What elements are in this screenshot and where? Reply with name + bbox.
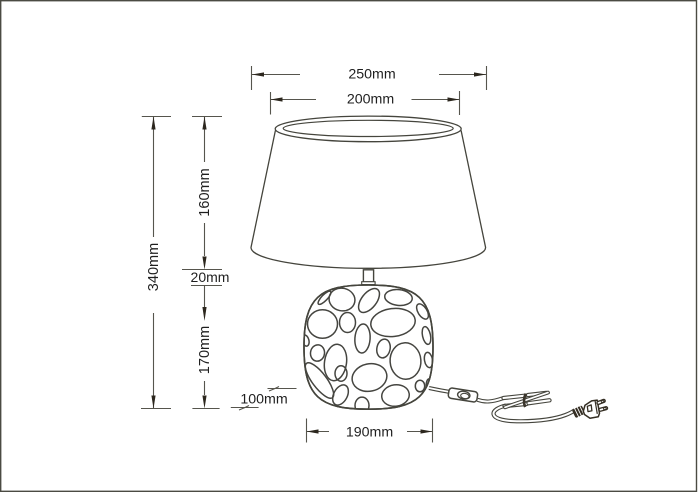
- svg-text:200mm: 200mm: [347, 92, 394, 108]
- svg-text:160mm: 160mm: [197, 168, 213, 216]
- svg-text:20mm: 20mm: [191, 269, 230, 285]
- svg-text:100mm: 100mm: [240, 392, 287, 408]
- svg-text:340mm: 340mm: [146, 243, 162, 291]
- svg-text:190mm: 190mm: [346, 425, 393, 441]
- svg-text:170mm: 170mm: [197, 326, 213, 374]
- svg-text:250mm: 250mm: [348, 67, 395, 83]
